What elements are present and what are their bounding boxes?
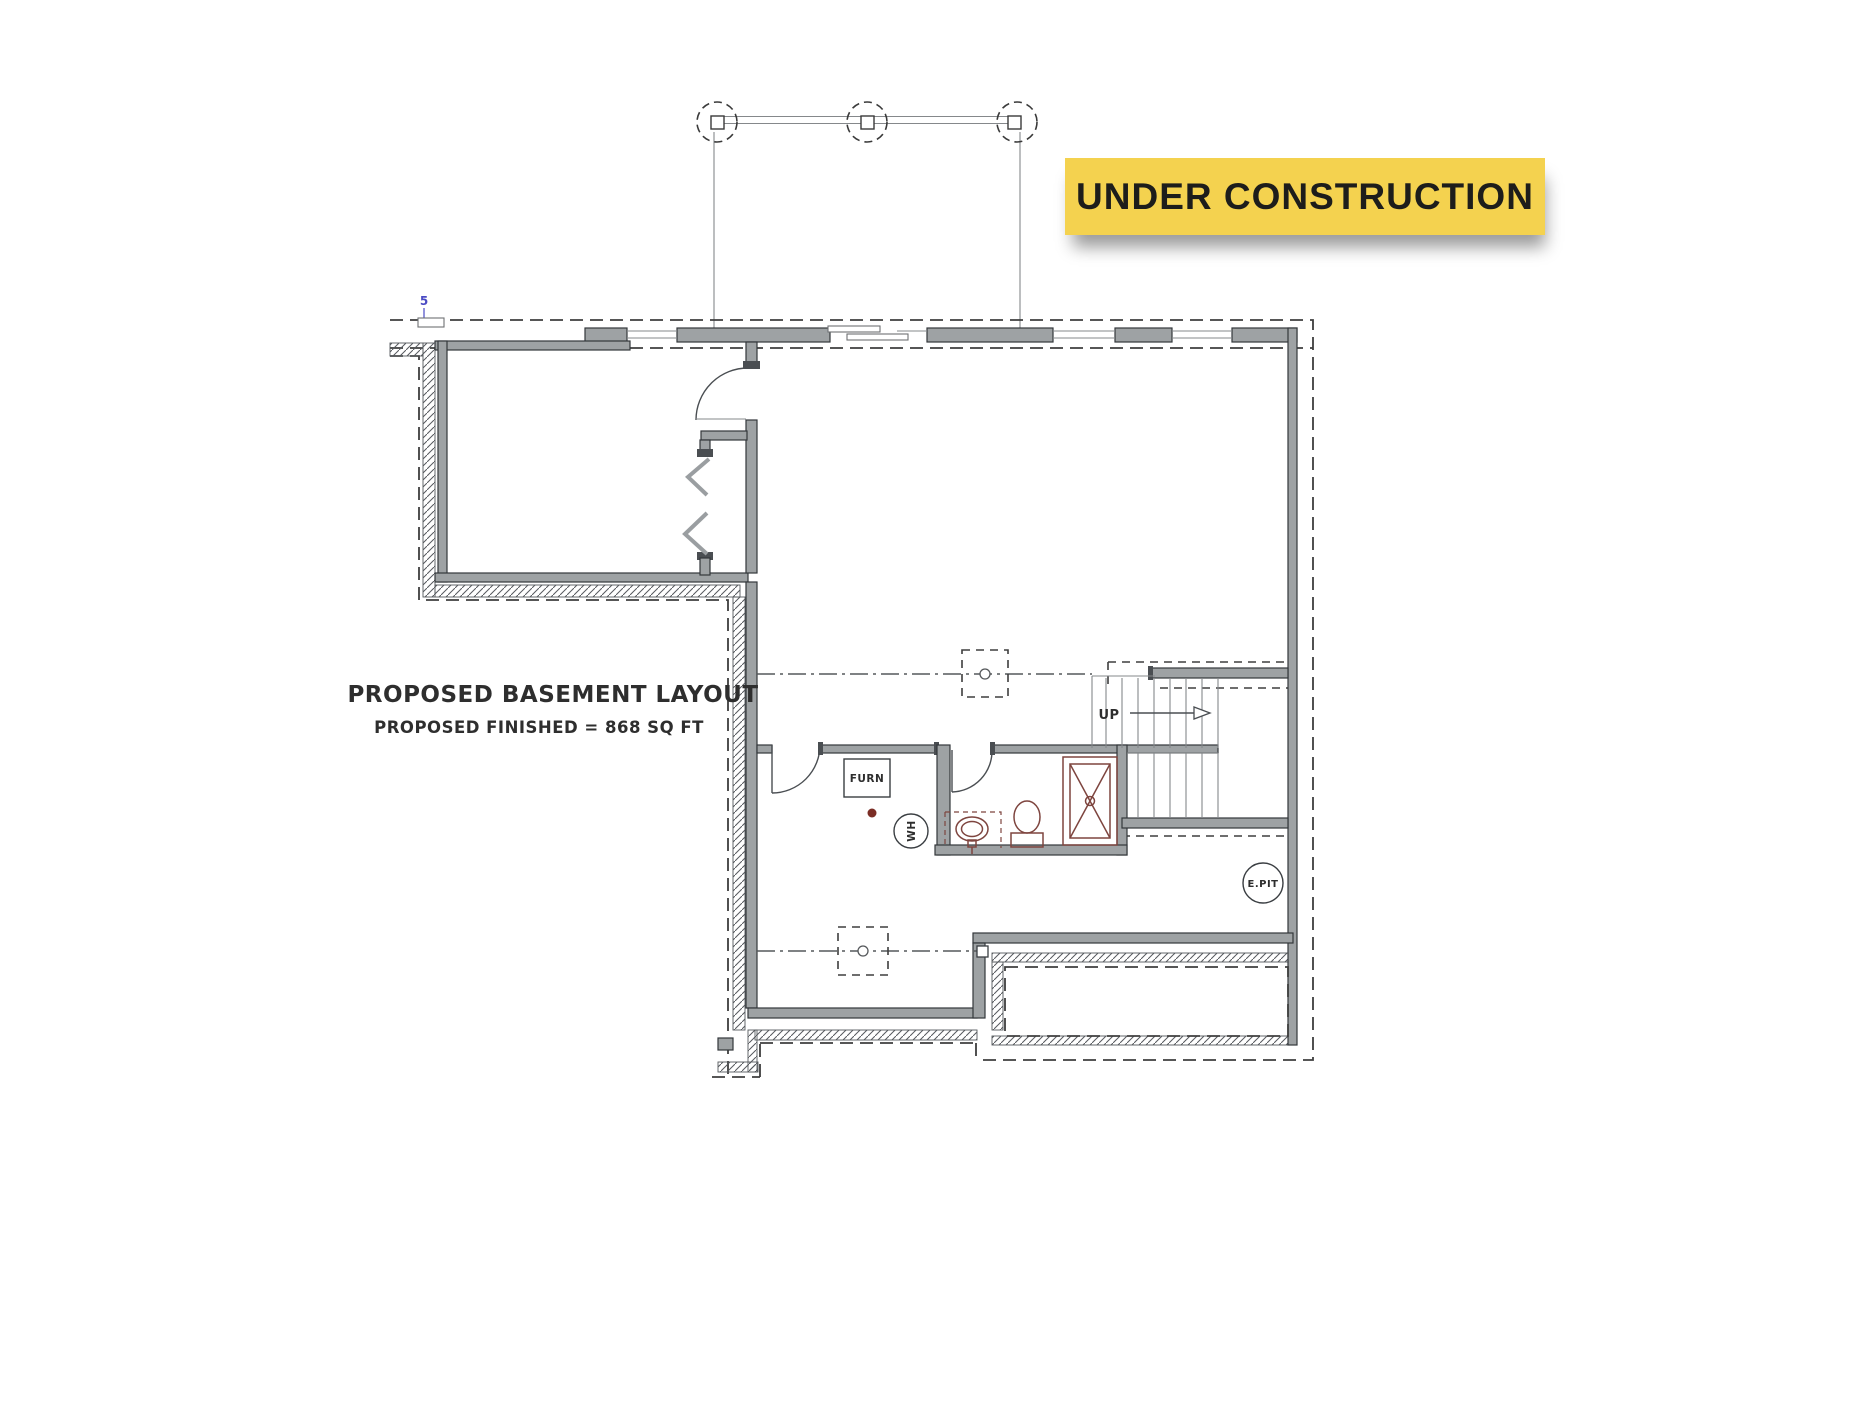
left-room-door bbox=[696, 368, 748, 420]
water-heater-label: WH bbox=[906, 820, 918, 841]
closet-chevrons bbox=[685, 459, 709, 554]
plan-title: PROPOSED BASEMENT LAYOUT bbox=[347, 682, 758, 708]
column-pads bbox=[757, 650, 1092, 975]
floor-plan: UP bbox=[0, 0, 1859, 1401]
bathroom-fixtures bbox=[945, 757, 1117, 854]
furnace: FURN bbox=[844, 759, 890, 797]
column-post bbox=[1008, 116, 1021, 129]
grid-marker: 5 bbox=[418, 294, 444, 327]
elevator-pit: E.PIT bbox=[1243, 863, 1283, 903]
storage-room bbox=[1005, 967, 1288, 1036]
furnace-label: FURN bbox=[850, 773, 885, 785]
floor-drain-dot bbox=[868, 809, 877, 818]
elevator-pit-label: E.PIT bbox=[1247, 879, 1278, 890]
plan-subtitle: PROPOSED FINISHED = 868 SQ FT bbox=[374, 718, 704, 737]
toilet bbox=[1011, 801, 1043, 847]
shower bbox=[1063, 757, 1117, 845]
grid-marker-label: 5 bbox=[420, 294, 428, 308]
centerline-terminal bbox=[977, 946, 988, 957]
stairs-up-label: UP bbox=[1098, 708, 1119, 723]
under-construction-banner: UNDER CONSTRUCTION bbox=[1065, 158, 1545, 235]
bathroom-door bbox=[952, 750, 992, 792]
slider-window bbox=[828, 326, 880, 332]
column-post bbox=[861, 116, 874, 129]
column-post bbox=[711, 116, 724, 129]
slider-window bbox=[847, 334, 908, 340]
column-grid bbox=[697, 102, 1037, 328]
page: UP bbox=[0, 0, 1859, 1401]
water-heater: WH bbox=[894, 814, 928, 848]
hall-door bbox=[772, 745, 820, 793]
under-construction-label: UNDER CONSTRUCTION bbox=[1076, 176, 1534, 218]
